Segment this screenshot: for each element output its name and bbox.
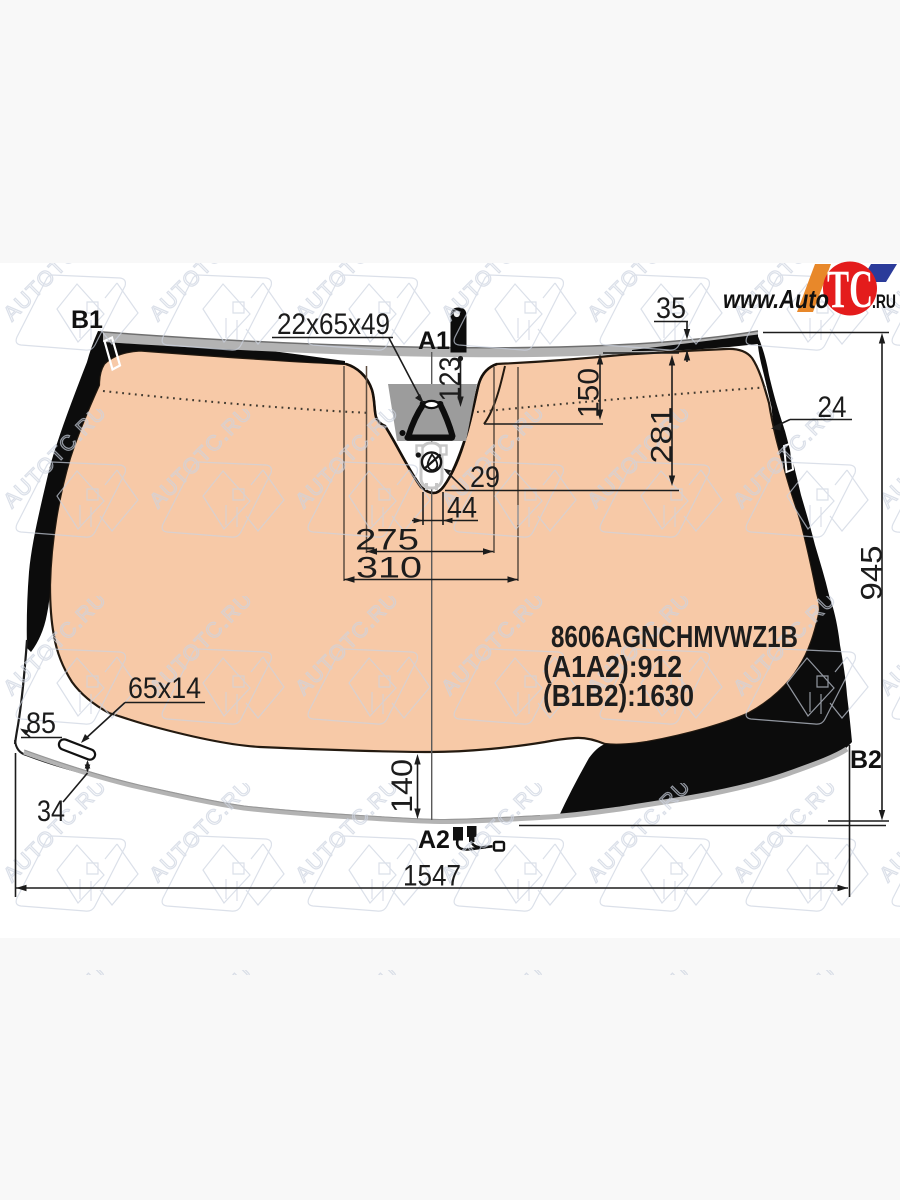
svg-text:34: 34	[37, 795, 65, 828]
svg-text:A2: A2	[418, 826, 450, 854]
svg-text:65x14: 65x14	[128, 672, 201, 705]
svg-text:22x65x49: 22x65x49	[277, 308, 390, 341]
svg-text:123: 123	[434, 357, 467, 402]
svg-text:A1: A1	[418, 327, 450, 355]
svg-text:B2: B2	[850, 746, 882, 774]
svg-text:85: 85	[26, 707, 56, 740]
svg-text:.RU: .RU	[872, 292, 896, 313]
svg-text:35: 35	[656, 292, 686, 325]
svg-text:140: 140	[386, 759, 419, 813]
svg-text:TC: TC	[827, 259, 873, 319]
svg-text:B1: B1	[71, 306, 103, 334]
svg-text:150: 150	[573, 368, 606, 418]
svg-text:310: 310	[356, 552, 422, 585]
svg-text:29: 29	[470, 461, 500, 494]
svg-text:44: 44	[447, 492, 477, 525]
svg-text:www.Auto: www.Auto	[723, 284, 829, 314]
svg-text:281: 281	[646, 407, 679, 464]
svg-text:945: 945	[856, 546, 889, 601]
svg-text:(B1B2):1630: (B1B2):1630	[543, 678, 694, 713]
svg-text:1547: 1547	[403, 860, 461, 893]
